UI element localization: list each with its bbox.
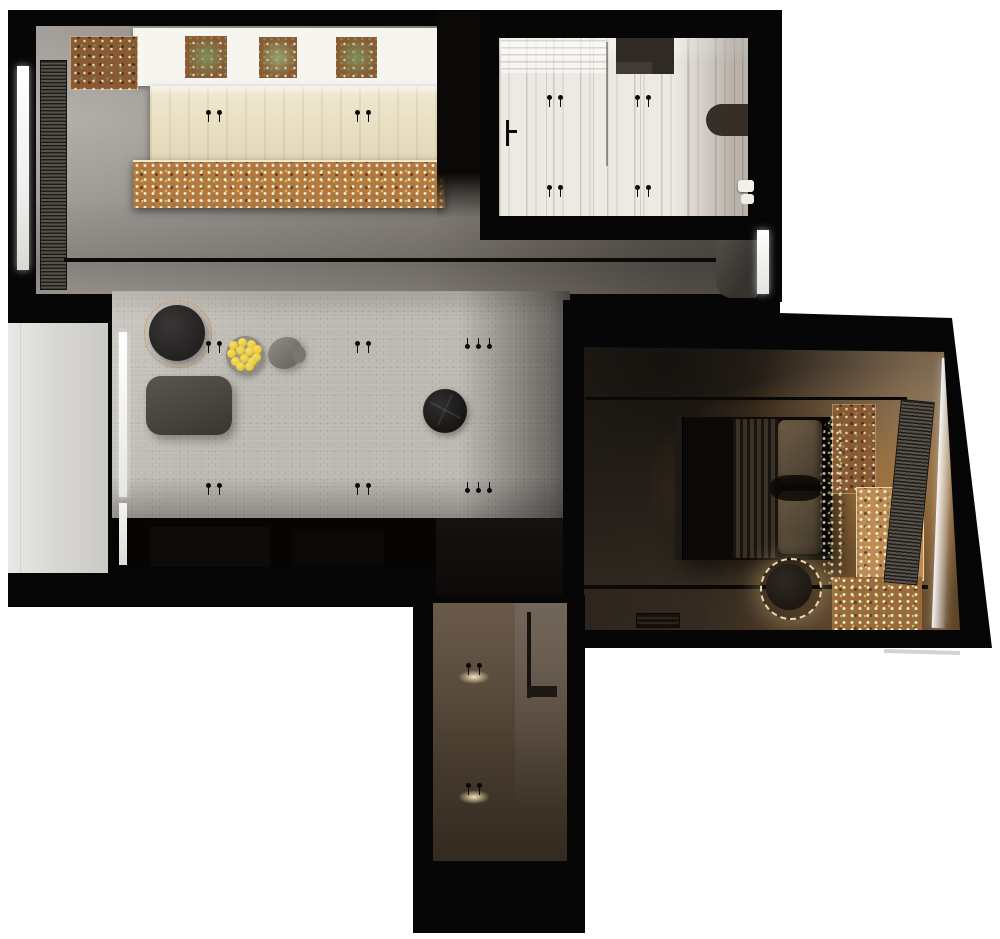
corridor-floor: [433, 603, 567, 861]
lemon-bowl: [226, 336, 264, 374]
decor-vase-neck: [292, 346, 306, 363]
toilet-fixture: [741, 194, 754, 204]
bedroom-planter: [832, 577, 922, 634]
door-hinge-icon: [506, 120, 509, 146]
counter-herb-planter: [259, 37, 297, 78]
lemon: [245, 362, 254, 371]
bathroom-door-leaf: [706, 104, 748, 136]
living-window-light: [119, 503, 127, 565]
lemon: [236, 362, 245, 371]
door-handle-icon: [506, 130, 517, 133]
ottoman: [146, 376, 232, 435]
corridor-wall-wash: [515, 603, 567, 861]
bed: [675, 417, 832, 560]
apartment-floor-plan: [0, 0, 1000, 939]
kitchen-cabinets: [150, 86, 440, 162]
kitchen-flower-planter: [133, 160, 445, 208]
balcony-seam: [20, 323, 21, 577]
bed-duvet-dark: [683, 419, 733, 558]
media-wall-detail: [292, 529, 384, 567]
curtain-rail: [64, 258, 728, 262]
radiator-kitchen: [40, 60, 67, 290]
terrace-edge-line: [884, 649, 960, 655]
corridor-shelf: [527, 686, 557, 697]
left-window-light: [17, 66, 29, 270]
balcony-floor: [8, 323, 108, 577]
plant-overflow: [820, 414, 846, 584]
coffee-table: [149, 305, 205, 361]
bathroom-cabinet-step: [616, 62, 652, 74]
passage-shadow-floor: [436, 518, 570, 606]
curtain-rail-bedroom: [585, 397, 907, 400]
wardrobe-seam: [606, 42, 608, 166]
counter-herb-planter: [185, 36, 227, 78]
bedside-table: [766, 564, 812, 610]
radiator-bedroom: [883, 399, 934, 585]
toilet-fixture: [738, 180, 754, 192]
media-wall-detail: [150, 527, 270, 567]
bedroom-bench: [636, 613, 680, 628]
right-window-light: [757, 230, 769, 294]
living-south-wall: [8, 573, 440, 607]
bed-headboard: [675, 417, 683, 560]
counter-herb-planter: [336, 37, 377, 78]
bedroom-floor: [584, 344, 964, 634]
living-window-light: [119, 332, 127, 497]
bathroom-top-panel: [501, 40, 607, 73]
bed-throw: [770, 475, 822, 501]
corner-planter: [70, 36, 138, 90]
